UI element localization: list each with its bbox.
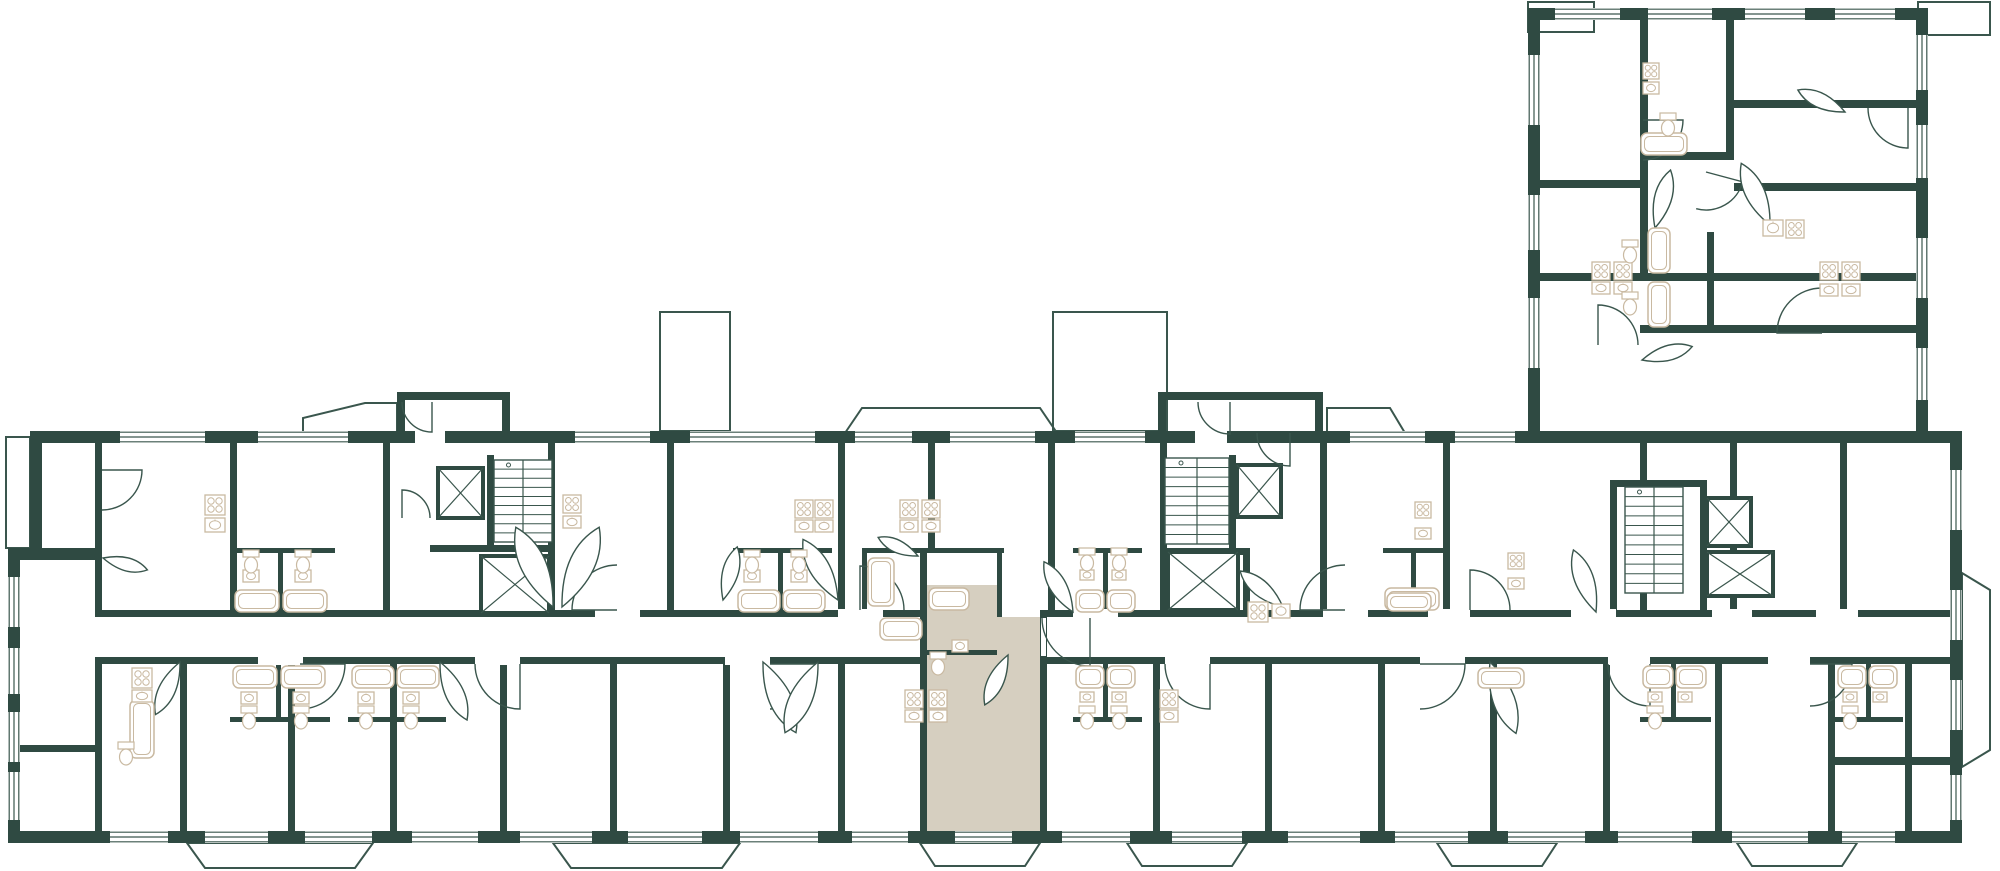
building-floor-plan	[0, 0, 2000, 871]
floor-plan-page	[0, 0, 2000, 871]
